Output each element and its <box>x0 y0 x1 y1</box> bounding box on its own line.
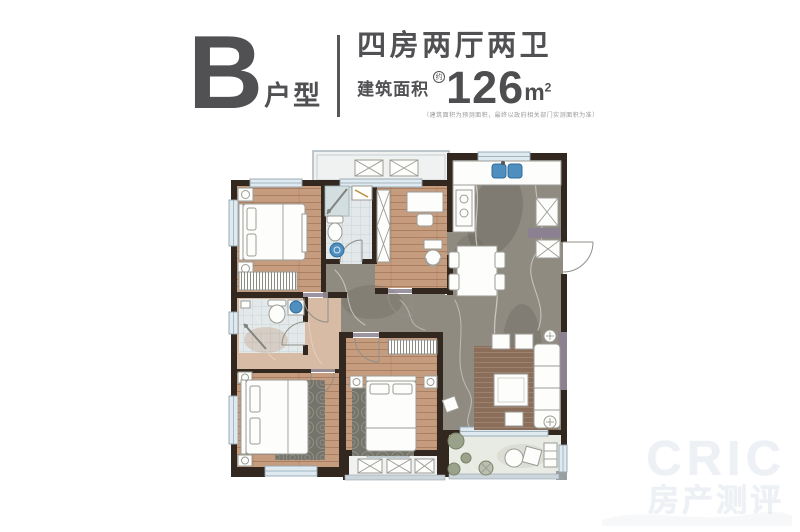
watermark-swoosh <box>602 486 792 526</box>
terrace-chair <box>522 446 542 466</box>
round-chair <box>425 250 441 266</box>
dining-table <box>457 246 497 296</box>
bath2-shelf <box>241 301 250 308</box>
page: B 户型 四房两厅两卫 建筑面积 约 126 m2 （建筑面积为预测面积，最终以… <box>0 0 800 532</box>
plant-2 <box>461 453 471 463</box>
side-table <box>424 240 442 249</box>
desk-chair <box>417 214 433 226</box>
coffee-table <box>494 374 528 406</box>
wall-study-bottom-a <box>375 288 388 294</box>
wall-kitchen-left <box>447 156 453 232</box>
window-right-lower <box>559 445 567 472</box>
wall-bedroom1-bottom-b <box>328 292 347 298</box>
window-master-left <box>229 396 238 444</box>
wardrobe-study <box>377 190 390 262</box>
balcony-bottom-rail <box>345 475 445 480</box>
desk <box>407 192 443 212</box>
toilet1-tank <box>327 216 343 223</box>
toilet1-bowl <box>328 223 342 241</box>
window-master-bottom <box>265 466 317 476</box>
wall-master-bottom-a <box>231 467 265 477</box>
wall-master-bottom-b <box>317 467 345 477</box>
terrace-rail <box>449 474 559 479</box>
wall-bed3-top-a <box>345 332 353 338</box>
window-bedroom1-top <box>250 179 302 187</box>
side-table-top <box>544 330 556 342</box>
dining-furniture <box>449 246 505 296</box>
wall-right-upper <box>561 156 567 242</box>
master-furniture <box>238 372 325 466</box>
wall-right-lower <box>561 390 567 445</box>
wall-bath1-bottom-a <box>323 259 340 264</box>
wall-bed3-right <box>437 332 443 452</box>
window-bedroom1-left <box>229 200 238 246</box>
balcony-bottom-units <box>358 459 434 473</box>
side-table-bottom <box>544 416 556 428</box>
stool-3 <box>505 412 523 426</box>
wall-living-balcony-b <box>548 430 563 435</box>
wardrobe-bedroom3 <box>388 340 437 354</box>
stool-1 <box>492 334 510 349</box>
sink2 <box>290 301 302 313</box>
watermark-brand: CRIC <box>646 435 786 484</box>
bed1-bench <box>302 214 307 252</box>
terrace-shelf <box>544 443 557 467</box>
sink1 <box>330 243 344 257</box>
kitchen-sink-right <box>508 164 522 178</box>
wall-bath2-right-b <box>303 345 308 355</box>
wall-bedroom1-bottom-a <box>231 292 303 298</box>
wall-study-bottom-b <box>412 288 450 294</box>
fridge <box>536 198 558 226</box>
wall-bath1-right <box>372 184 377 264</box>
terrace-table <box>505 449 523 467</box>
window-kitchen-top <box>478 152 530 161</box>
sofa <box>534 344 560 428</box>
wall-master-top-b <box>335 369 341 373</box>
kitchen-counter-accent <box>528 228 561 238</box>
bed1-headboard <box>239 204 243 260</box>
kitchen-counter-top <box>453 161 561 185</box>
wall-bath1-bottom-b <box>362 259 375 264</box>
wardrobe-bedroom1 <box>239 272 297 290</box>
watermark: CRIC 房产测评 <box>646 435 786 518</box>
entry-door <box>563 242 593 272</box>
master-headboard <box>241 380 246 454</box>
wall-bed3-top-b <box>379 332 443 338</box>
kitchen-cabinet <box>536 240 560 258</box>
plant-3 <box>448 463 460 475</box>
kitchen-sink-left <box>492 164 506 178</box>
wall-right-mid <box>561 274 567 332</box>
stool-2 <box>515 334 533 349</box>
window-bath2-left <box>229 312 238 334</box>
toilet2-bowl <box>269 305 285 323</box>
plant-fan <box>479 461 493 475</box>
bed3-headboard <box>366 376 416 381</box>
